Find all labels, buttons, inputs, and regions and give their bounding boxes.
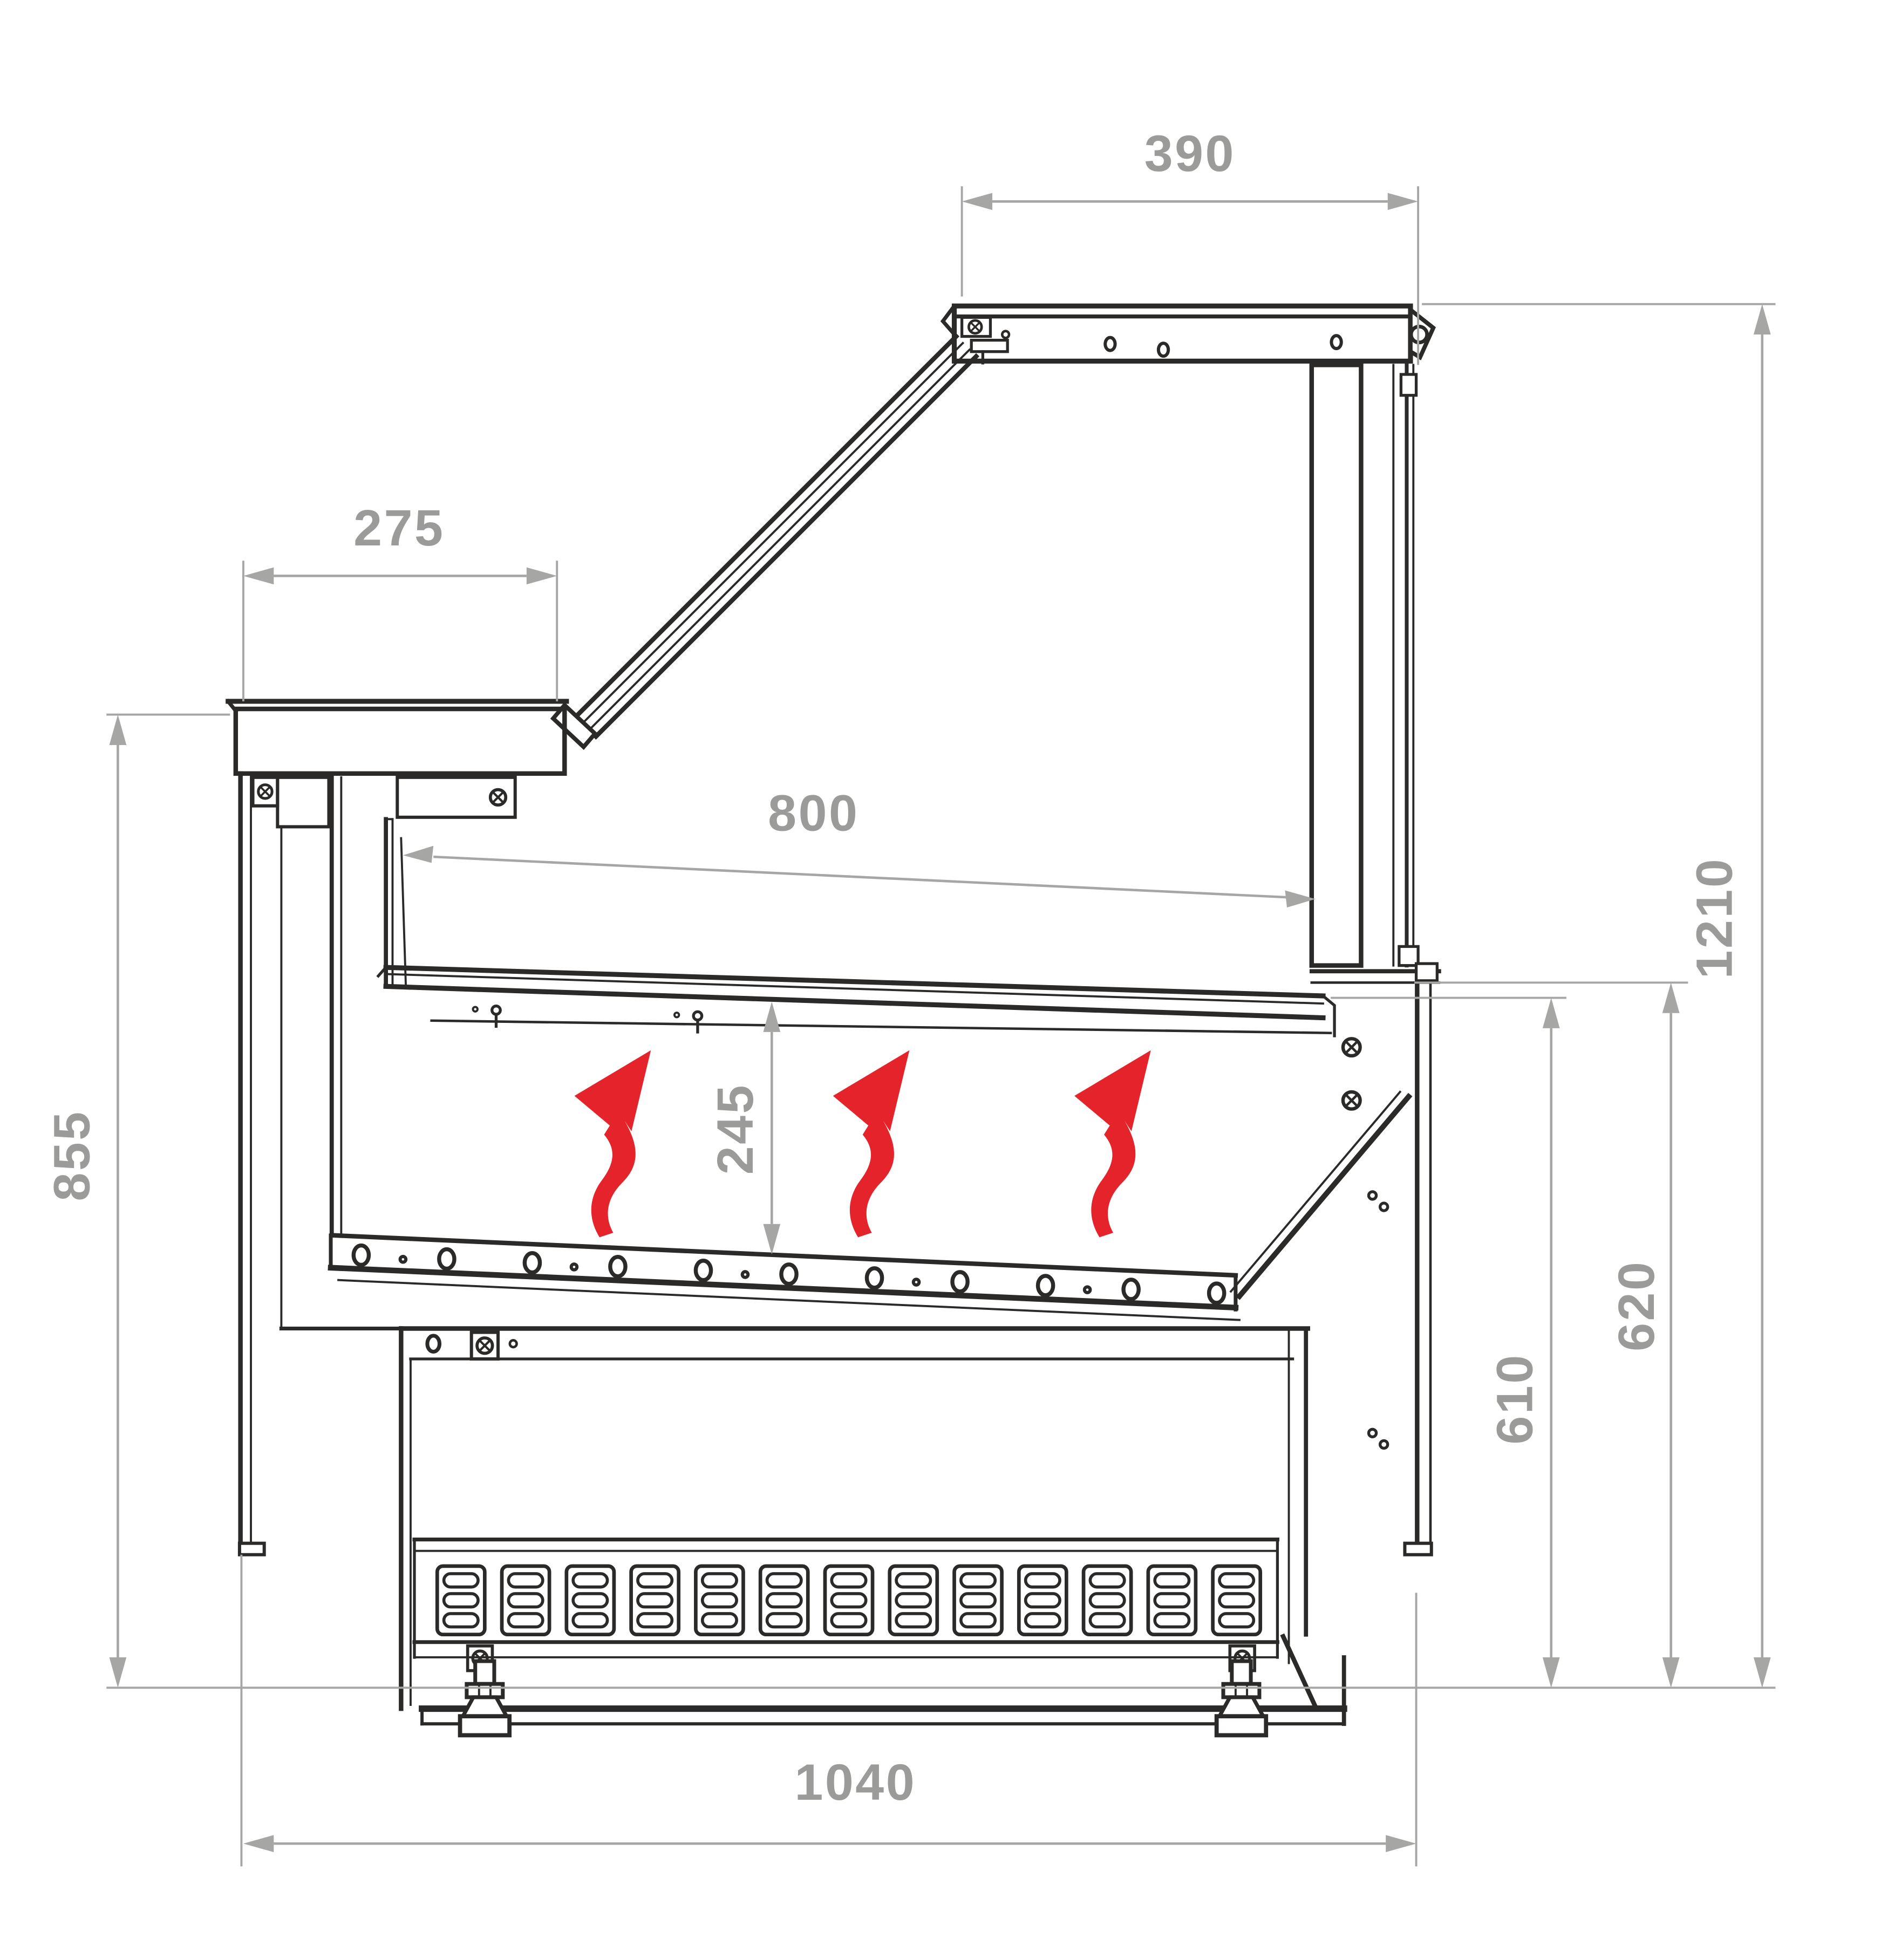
dimension-label: 855 — [44, 1110, 101, 1201]
well-front-wall — [332, 777, 406, 1235]
lower-cabinet — [401, 1329, 1344, 1736]
dimension-label: 1040 — [795, 1754, 917, 1812]
dimension-label: 1210 — [1686, 857, 1743, 979]
dimension-label: 245 — [707, 1083, 764, 1174]
airflow-arrow — [833, 1050, 910, 1238]
base-plate — [422, 1657, 1344, 1724]
glass-end-cap — [553, 705, 595, 747]
leveling-foot-front — [460, 1661, 510, 1735]
dimension-245: 245 — [707, 1002, 780, 1255]
counter-top — [228, 701, 567, 774]
technical-drawing: 390 275 800 1210 855 — [0, 0, 1901, 1959]
canopy-latch — [962, 318, 1009, 364]
page: 390 275 800 1210 855 — [0, 0, 1901, 1960]
leveling-foot-rear — [1217, 1661, 1266, 1735]
dimension-label: 800 — [768, 785, 859, 842]
dimension-800: 800 — [403, 785, 1316, 908]
dimension-label: 390 — [1144, 125, 1236, 182]
front-glass — [553, 337, 976, 747]
dimension-390: 390 — [962, 125, 1418, 365]
airflow-arrow — [575, 1050, 651, 1238]
dimension-275: 275 — [243, 500, 557, 702]
dimension-855: 855 — [44, 715, 230, 1688]
dimension-label: 610 — [1487, 1354, 1544, 1445]
airflow-arrows — [575, 1050, 1151, 1238]
dimension-610: 610 — [1331, 998, 1566, 1688]
dimension-1210: 1210 — [1422, 304, 1775, 1688]
canopy — [943, 306, 1433, 364]
dimension-label: 620 — [1608, 1260, 1665, 1351]
vent-grille — [414, 1540, 1277, 1657]
display-deck — [378, 968, 1334, 1036]
dimension-label: 275 — [353, 500, 445, 557]
airflow-arrow — [1074, 1050, 1151, 1238]
left-wall — [240, 774, 401, 1555]
perforated-strip — [331, 1235, 1239, 1320]
rear-column — [1312, 365, 1439, 983]
canopy-end-bracket — [1411, 310, 1433, 358]
